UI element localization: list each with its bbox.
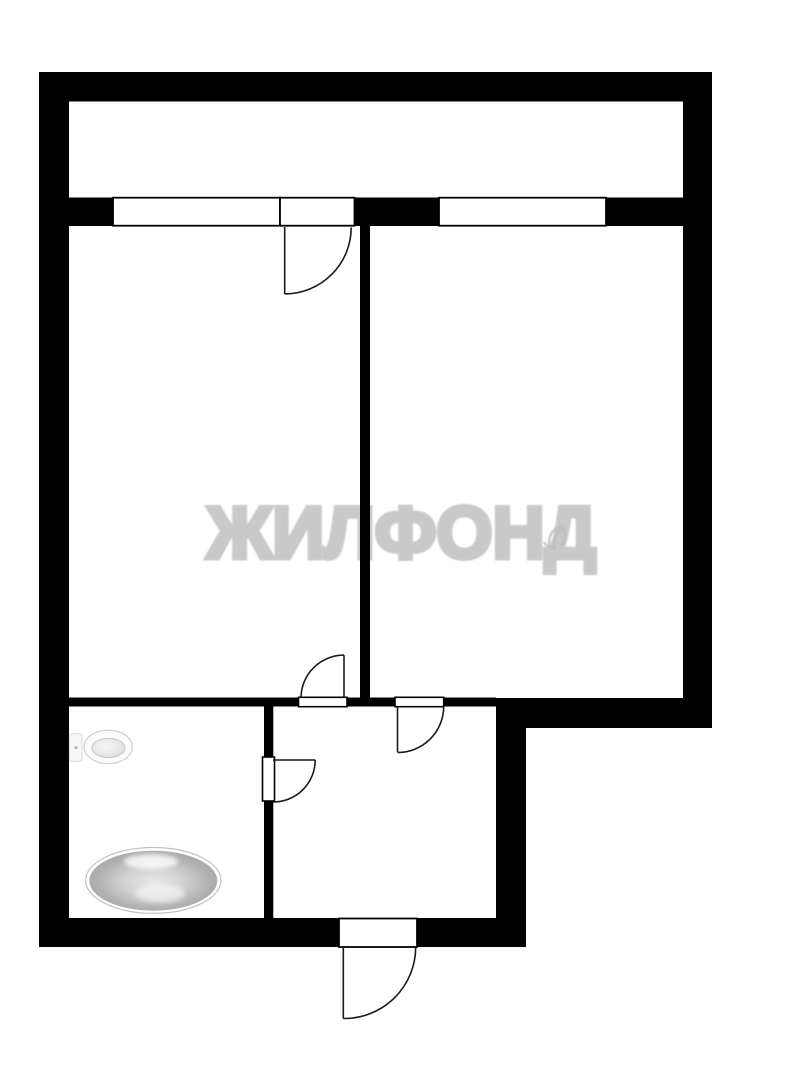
svg-text:ЖИЛФОНД: ЖИЛФОНД [206, 493, 596, 574]
